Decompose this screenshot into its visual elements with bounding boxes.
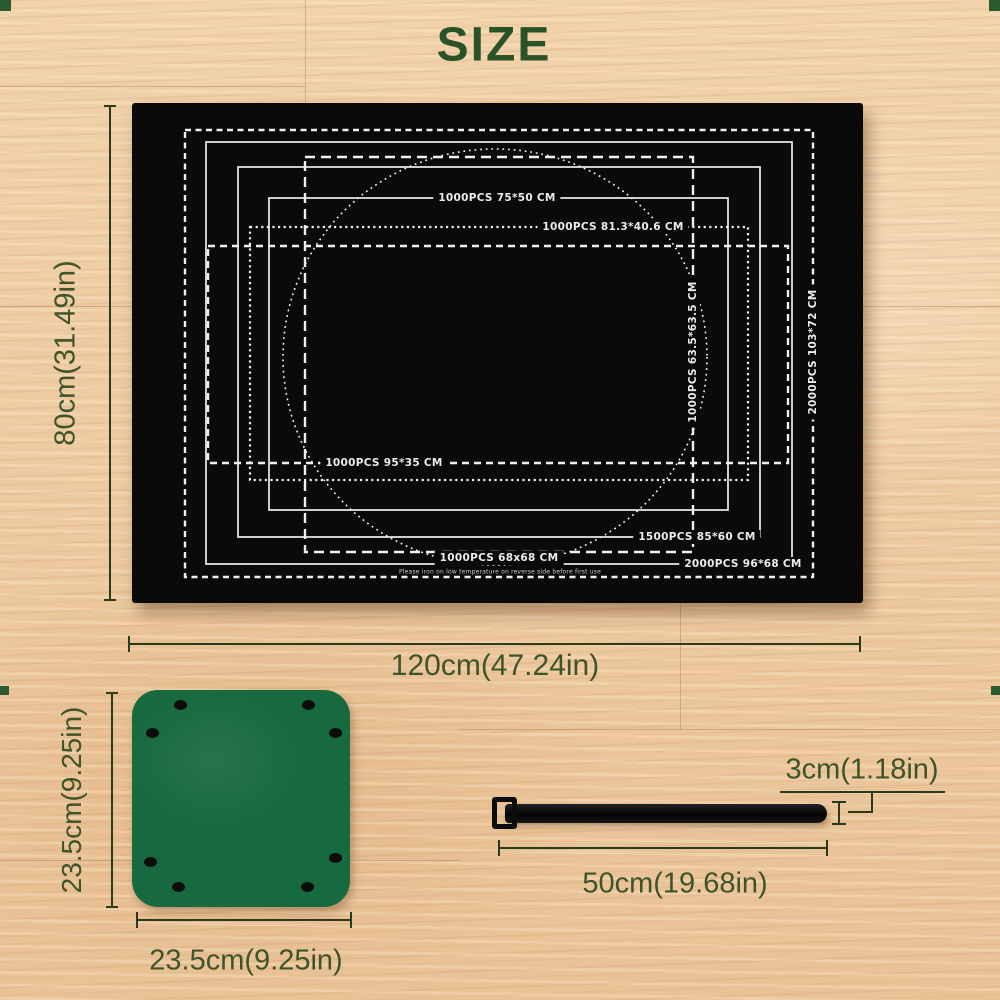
care-note: Please iron on low temperature on revers… (396, 569, 604, 576)
corner-mark (0, 0, 11, 11)
corner-mark (0, 686, 9, 695)
mat-width-dimension-line (128, 643, 861, 645)
pad-hole (329, 728, 342, 738)
pad-height-label: 23.5cm(9.25in) (56, 707, 88, 894)
mat-print-layer (132, 103, 863, 603)
mat-size-label: 1000PCS 63.5*63.5 CM (686, 276, 700, 427)
wood-seam (460, 729, 1000, 730)
size-outline (305, 157, 693, 552)
pad-hole (146, 728, 159, 738)
mat-size-label: 2000PCS 103*72 CM (806, 285, 820, 420)
pad-hole (329, 853, 342, 863)
size-outline (208, 246, 788, 463)
mat-height-label: 80cm(31.49in) (50, 260, 83, 445)
felt-pad (132, 690, 350, 907)
mat-size-label: 1000PCS 95*35 CM (320, 456, 447, 470)
mat-size-label: 1000PCS 68x68 CM (435, 551, 564, 565)
strap-band (505, 804, 827, 823)
strap-length-dimension-line (498, 847, 828, 849)
strap-width-connector (848, 811, 873, 813)
strap-width-underline (780, 791, 945, 793)
pad-width-dimension-line (136, 919, 352, 921)
puzzle-mat: Please iron on low temperature on revers… (132, 103, 863, 603)
strap-width-connector (871, 791, 873, 813)
pad-hole (301, 882, 314, 892)
circle-size-outline (283, 149, 707, 565)
pad-hole (302, 700, 315, 710)
mat-size-label: 1000PCS 81.3*40.6 CM (537, 220, 688, 234)
pad-hole (174, 700, 187, 710)
mat-size-label: 1500PCS 85*60 CM (633, 530, 760, 544)
strap-width-bracket (838, 802, 840, 824)
pad-height-dimension-line (111, 692, 113, 908)
strap-length-label: 50cm(19.68in) (582, 868, 767, 901)
strap-width-bracket-tick (832, 801, 846, 803)
wood-seam (0, 86, 305, 87)
strap-width-bracket-tick (832, 823, 846, 825)
mat-height-dimension-line (109, 105, 111, 601)
mat-width-label: 120cm(47.24in) (391, 649, 599, 683)
page-title: SIZE (437, 18, 552, 73)
corner-mark (989, 0, 1000, 11)
mat-size-label: 1000PCS 75*50 CM (433, 191, 560, 205)
pad-width-label: 23.5cm(9.25in) (149, 945, 342, 978)
size-outline (206, 142, 792, 564)
strap-buckle (492, 797, 517, 829)
pad-hole (144, 857, 157, 867)
pad-hole (172, 882, 185, 892)
strap-width-label: 3cm(1.18in) (785, 754, 938, 787)
size-outline (250, 227, 748, 480)
mat-size-label: 2000PCS 96*68 CM (679, 557, 806, 571)
corner-mark (991, 686, 1000, 695)
